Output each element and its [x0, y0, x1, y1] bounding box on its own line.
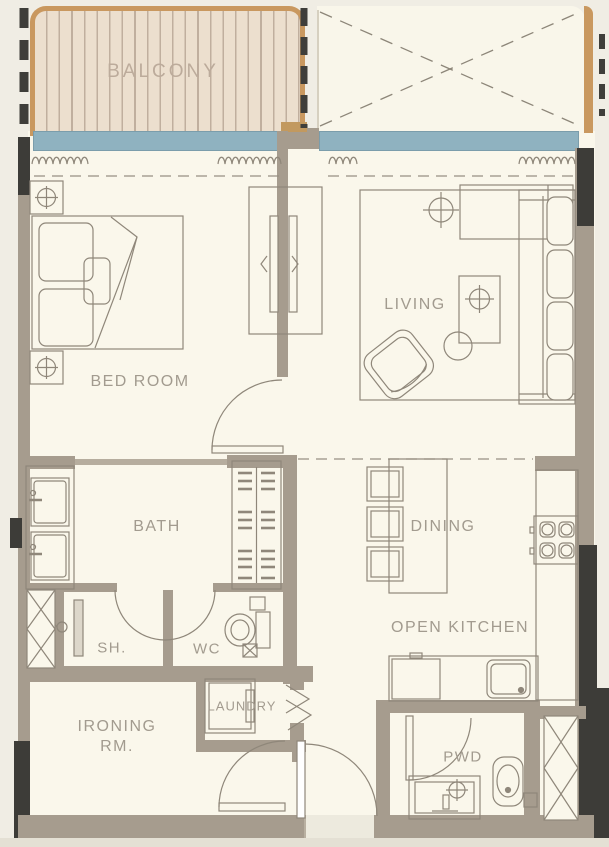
nightstand — [30, 181, 63, 214]
kitchen-counter-bottom — [389, 653, 538, 701]
entry-door — [297, 741, 377, 818]
curtains — [32, 157, 575, 164]
stove-hob-icon — [530, 516, 578, 564]
ironing-label-line1: IRONING — [78, 717, 157, 737]
room-label-bath: BATH — [133, 518, 180, 536]
shaft-left — [27, 590, 55, 668]
dining-chairs — [367, 467, 403, 581]
ceiling-dashed-lines — [34, 176, 574, 459]
kitchen-counter-right — [536, 470, 578, 700]
ironing-room-door — [219, 741, 285, 811]
bedroom-door — [212, 380, 283, 453]
shaft-right — [544, 716, 578, 820]
ceiling-light-icon — [423, 192, 459, 228]
pwd-toilet-icon — [493, 757, 537, 807]
bath-vanity — [26, 466, 74, 589]
room-label-bedroom: BED ROOM — [90, 373, 189, 391]
bifold-door — [286, 685, 311, 730]
room-label-shower: SH. — [97, 640, 127, 657]
room-label-ironing: IRONING RM. — [78, 717, 157, 757]
pwd-vanity — [409, 776, 480, 819]
ironing-label-line2: RM. — [78, 737, 157, 757]
shower-glass — [52, 600, 83, 656]
room-label-powder: PWD — [443, 749, 483, 766]
linen-closet — [232, 461, 281, 589]
terrace-cross-icon — [318, 10, 580, 128]
nightstand — [30, 351, 63, 384]
floor-drain-icon — [243, 644, 257, 657]
floor-plan: BALCONY BED ROOM LIVING BATH DINING OPEN… — [0, 0, 609, 847]
coffee-table — [444, 276, 500, 360]
shwc-door-arc — [115, 590, 215, 640]
room-label-open-kitchen: OPEN KITCHEN — [391, 619, 529, 637]
wardrobe-sliding — [249, 187, 322, 334]
room-label-living: LIVING — [384, 296, 445, 314]
armchair — [359, 325, 438, 403]
room-label-laundry: LAUNDRY — [208, 699, 277, 714]
toilet-icon — [225, 597, 270, 648]
bed — [32, 216, 183, 349]
room-label-dining: DINING — [411, 518, 476, 536]
room-label-balcony: BALCONY — [107, 61, 219, 83]
sofa — [519, 190, 575, 404]
room-label-wc: WC — [193, 641, 221, 658]
